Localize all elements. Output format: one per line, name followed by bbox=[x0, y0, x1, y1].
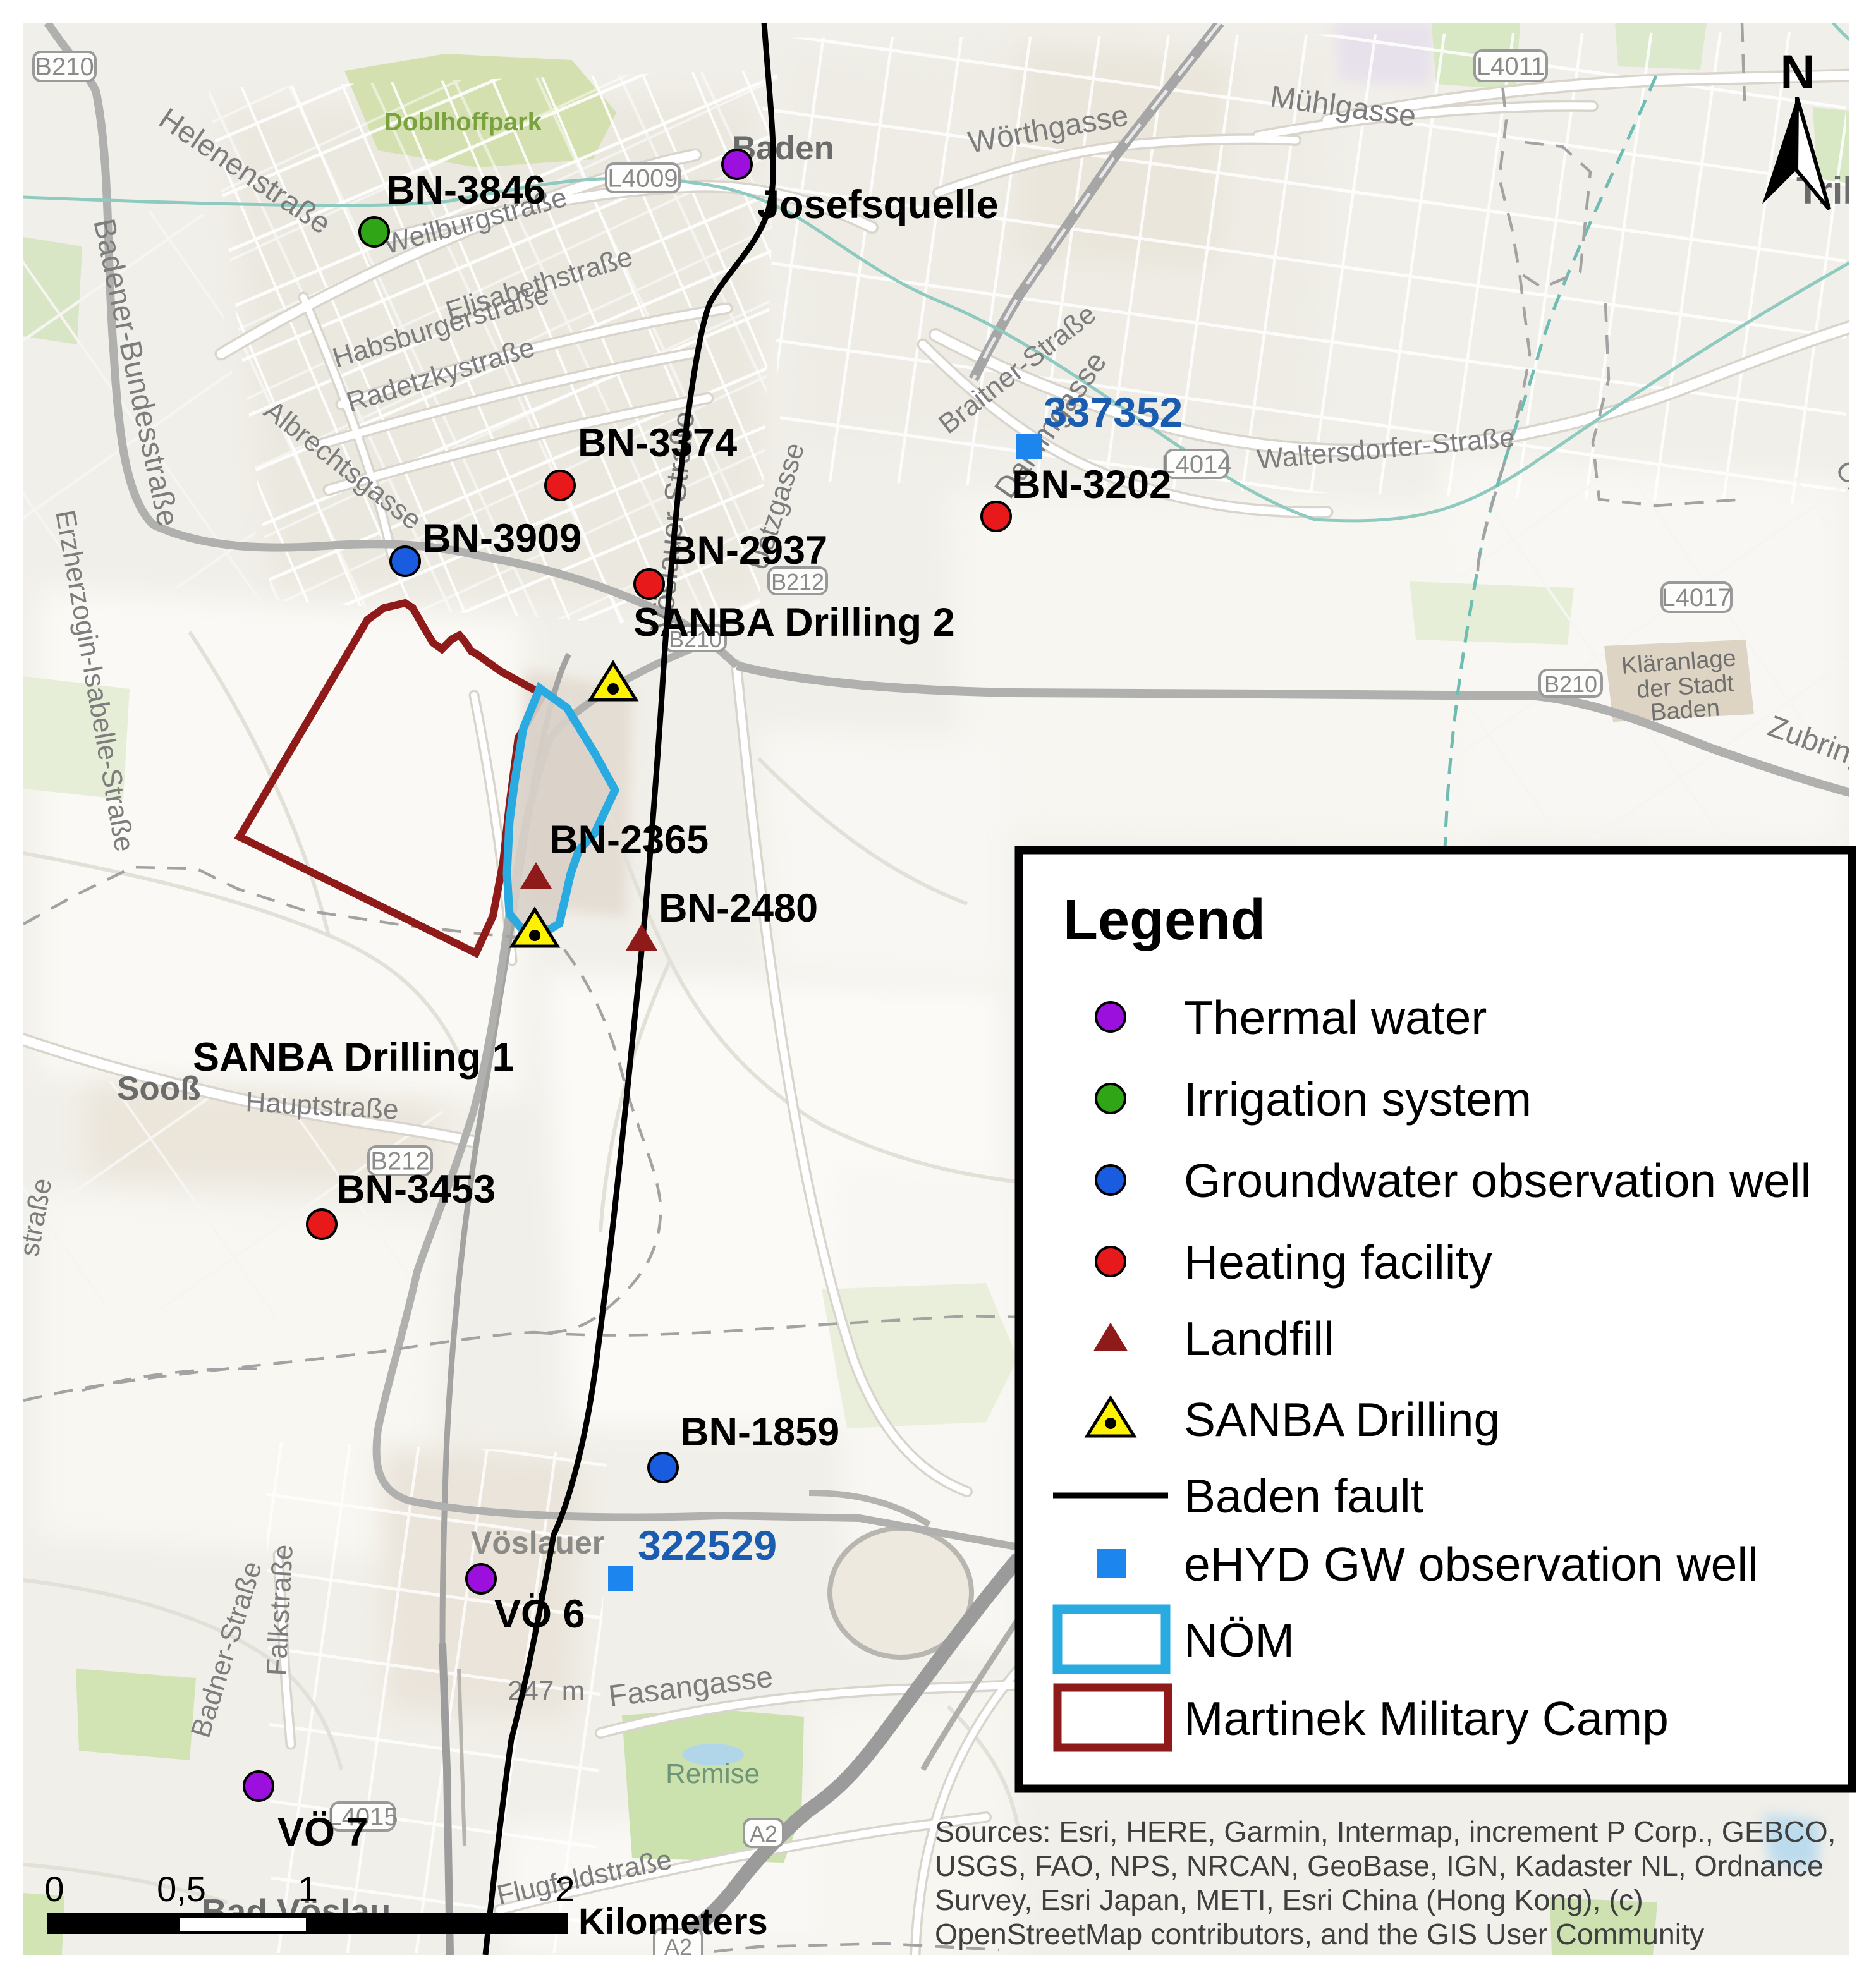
svg-text:Martinek Military Camp: Martinek Military Camp bbox=[1184, 1692, 1669, 1745]
svg-text:Kilometers: Kilometers bbox=[578, 1901, 768, 1942]
svg-text:BN-1859: BN-1859 bbox=[680, 1410, 839, 1454]
svg-text:BN-3453: BN-3453 bbox=[336, 1167, 496, 1212]
svg-text:B210: B210 bbox=[1544, 671, 1597, 697]
svg-text:SANBA Drilling: SANBA Drilling bbox=[1184, 1393, 1500, 1446]
svg-text:322529: 322529 bbox=[638, 1522, 777, 1569]
svg-text:Irrigation system: Irrigation system bbox=[1184, 1073, 1532, 1126]
svg-text:Landfill: Landfill bbox=[1184, 1312, 1334, 1365]
svg-text:VÖ 6: VÖ 6 bbox=[494, 1592, 585, 1636]
svg-text:L4014: L4014 bbox=[1161, 451, 1231, 478]
svg-text:L4011: L4011 bbox=[1477, 52, 1545, 80]
svg-text:Sooß: Sooß bbox=[117, 1070, 200, 1107]
svg-text:Josefsquelle: Josefsquelle bbox=[757, 183, 999, 227]
svg-text:BN-2937: BN-2937 bbox=[668, 528, 827, 573]
svg-text:L4009: L4009 bbox=[607, 165, 678, 193]
svg-text:Sources: Esri, HERE, Garmin, I: Sources: Esri, HERE, Garmin, Intermap, i… bbox=[935, 1815, 1836, 1848]
svg-text:2: 2 bbox=[555, 1869, 575, 1909]
svg-text:BN-3374: BN-3374 bbox=[578, 421, 737, 465]
svg-text:337352: 337352 bbox=[1044, 389, 1183, 435]
svg-text:L4017: L4017 bbox=[1661, 584, 1731, 612]
svg-text:Thermal water: Thermal water bbox=[1184, 991, 1487, 1044]
svg-text:A2: A2 bbox=[750, 1821, 777, 1847]
svg-text:BN-3846: BN-3846 bbox=[386, 168, 545, 212]
svg-text:Heating facility: Heating facility bbox=[1184, 1236, 1492, 1289]
svg-text:N: N bbox=[1781, 46, 1815, 99]
svg-text:eHYD GW observation well: eHYD GW observation well bbox=[1184, 1538, 1758, 1591]
svg-text:Groundwater observation well: Groundwater observation well bbox=[1184, 1154, 1811, 1207]
svg-text:NÖM: NÖM bbox=[1184, 1614, 1294, 1667]
svg-text:Baden: Baden bbox=[1650, 695, 1721, 726]
svg-text:USGS, FAO, NPS, NRCAN, GeoBase: USGS, FAO, NPS, NRCAN, GeoBase, IGN, Kad… bbox=[935, 1849, 1824, 1882]
svg-text:Doblhoffpark: Doblhoffpark bbox=[384, 108, 542, 136]
svg-text:BN-3202: BN-3202 bbox=[1012, 463, 1171, 507]
svg-text:0: 0 bbox=[44, 1869, 64, 1909]
svg-text:Remise: Remise bbox=[666, 1758, 760, 1789]
svg-text:SANBA Drilling 1: SANBA Drilling 1 bbox=[193, 1035, 515, 1080]
svg-text:VÖ 7: VÖ 7 bbox=[277, 1810, 368, 1854]
svg-text:Baden fault: Baden fault bbox=[1184, 1469, 1424, 1523]
svg-text:BN-2480: BN-2480 bbox=[659, 886, 818, 930]
svg-text:SANBA Drilling 2: SANBA Drilling 2 bbox=[633, 600, 955, 645]
svg-text:BN-3909: BN-3909 bbox=[422, 516, 582, 561]
svg-text:B212: B212 bbox=[771, 569, 824, 595]
svg-text:Survey, Esri Japan, METI, Esri: Survey, Esri Japan, METI, Esri China (Ho… bbox=[935, 1883, 1643, 1916]
svg-text:B210: B210 bbox=[35, 53, 94, 81]
svg-text:1: 1 bbox=[298, 1869, 317, 1909]
svg-text:BN-2365: BN-2365 bbox=[549, 818, 709, 862]
svg-text:OpenStreetMap contributors, an: OpenStreetMap contributors, and the GIS … bbox=[935, 1918, 1705, 1950]
svg-text:Legend: Legend bbox=[1063, 889, 1265, 952]
svg-text:Vöslauer: Vöslauer bbox=[471, 1525, 604, 1560]
svg-text:0,5: 0,5 bbox=[157, 1869, 206, 1909]
